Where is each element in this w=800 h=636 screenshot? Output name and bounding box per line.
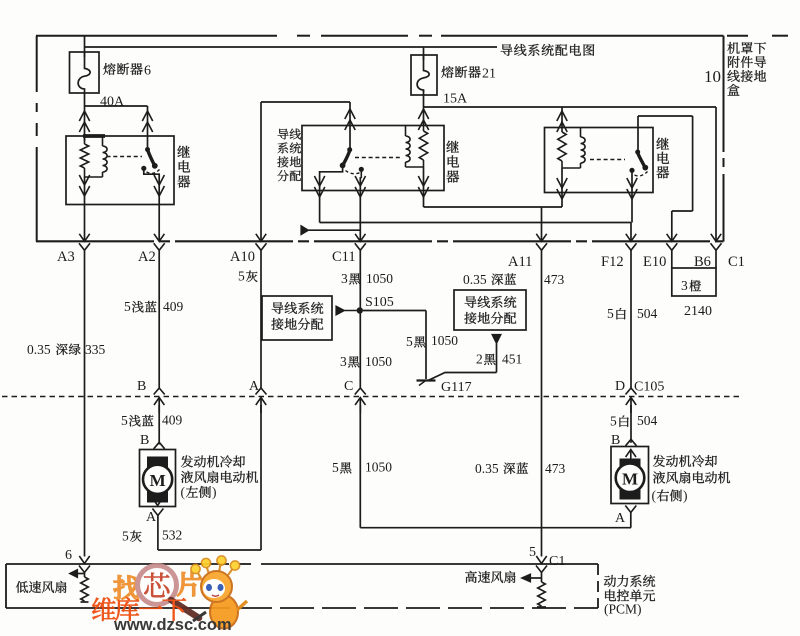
svg-text:21: 21 xyxy=(482,67,496,82)
svg-text:2: 2 xyxy=(476,352,483,367)
svg-text:5: 5 xyxy=(529,545,536,560)
svg-text:6: 6 xyxy=(65,548,72,563)
svg-text:G117: G117 xyxy=(441,380,472,395)
svg-text:532: 532 xyxy=(162,528,182,543)
svg-text:C11: C11 xyxy=(332,249,356,265)
svg-text:A3: A3 xyxy=(57,249,75,265)
svg-text:B: B xyxy=(137,379,146,394)
svg-text:5: 5 xyxy=(610,414,617,429)
svg-text:M: M xyxy=(622,469,638,488)
svg-text:5: 5 xyxy=(332,460,339,475)
svg-text:504: 504 xyxy=(637,413,658,428)
svg-text:A: A xyxy=(146,510,157,525)
svg-text:0.35: 0.35 xyxy=(475,461,499,476)
svg-text:1050: 1050 xyxy=(365,354,392,369)
svg-text:473: 473 xyxy=(545,461,566,476)
svg-text:5: 5 xyxy=(238,269,245,284)
svg-text:0.35: 0.35 xyxy=(27,342,51,357)
svg-text:409: 409 xyxy=(163,299,184,314)
svg-text:C1: C1 xyxy=(728,254,745,270)
svg-text:5: 5 xyxy=(124,299,131,314)
svg-text:www.dzsc.com: www.dzsc.com xyxy=(113,616,232,634)
svg-text:3: 3 xyxy=(340,354,347,369)
svg-text:40A: 40A xyxy=(100,95,125,110)
svg-text:3: 3 xyxy=(341,271,348,286)
svg-text:1050: 1050 xyxy=(431,333,458,348)
svg-text:3: 3 xyxy=(681,278,688,293)
svg-text:10: 10 xyxy=(704,67,721,86)
svg-text:A: A xyxy=(249,379,260,394)
svg-text:(PCM): (PCM) xyxy=(604,602,642,617)
svg-text:451: 451 xyxy=(502,352,522,367)
svg-text:): ) xyxy=(683,488,688,503)
svg-text:5: 5 xyxy=(406,334,413,349)
svg-text:A10: A10 xyxy=(230,249,255,265)
svg-text:335: 335 xyxy=(85,342,106,357)
svg-text:M: M xyxy=(150,471,166,490)
svg-text:(: ( xyxy=(181,485,186,500)
svg-text:C1: C1 xyxy=(549,554,565,569)
svg-text:2140: 2140 xyxy=(684,304,712,319)
svg-text:409: 409 xyxy=(162,413,183,428)
svg-text:A11: A11 xyxy=(508,254,532,270)
svg-text:S105: S105 xyxy=(365,295,394,310)
svg-text:504: 504 xyxy=(637,306,658,321)
svg-text:15A: 15A xyxy=(443,92,468,107)
svg-text:(: ( xyxy=(652,488,657,503)
svg-text:5: 5 xyxy=(122,529,129,544)
svg-text:1050: 1050 xyxy=(366,271,393,286)
svg-text:5: 5 xyxy=(121,413,128,428)
svg-text:1050: 1050 xyxy=(365,460,392,475)
svg-text:473: 473 xyxy=(544,272,565,287)
svg-text:B: B xyxy=(140,433,149,448)
svg-text:E10: E10 xyxy=(643,254,666,270)
svg-text:C: C xyxy=(344,379,353,394)
svg-text:A: A xyxy=(615,511,626,526)
svg-text:5: 5 xyxy=(607,306,614,321)
svg-text:F12: F12 xyxy=(601,254,624,270)
svg-text:D: D xyxy=(615,379,625,394)
svg-text:0.35: 0.35 xyxy=(463,272,487,287)
svg-text:6: 6 xyxy=(144,64,151,79)
svg-text:C105: C105 xyxy=(634,380,664,395)
svg-text:A2: A2 xyxy=(138,249,156,265)
svg-text:): ) xyxy=(212,485,217,500)
